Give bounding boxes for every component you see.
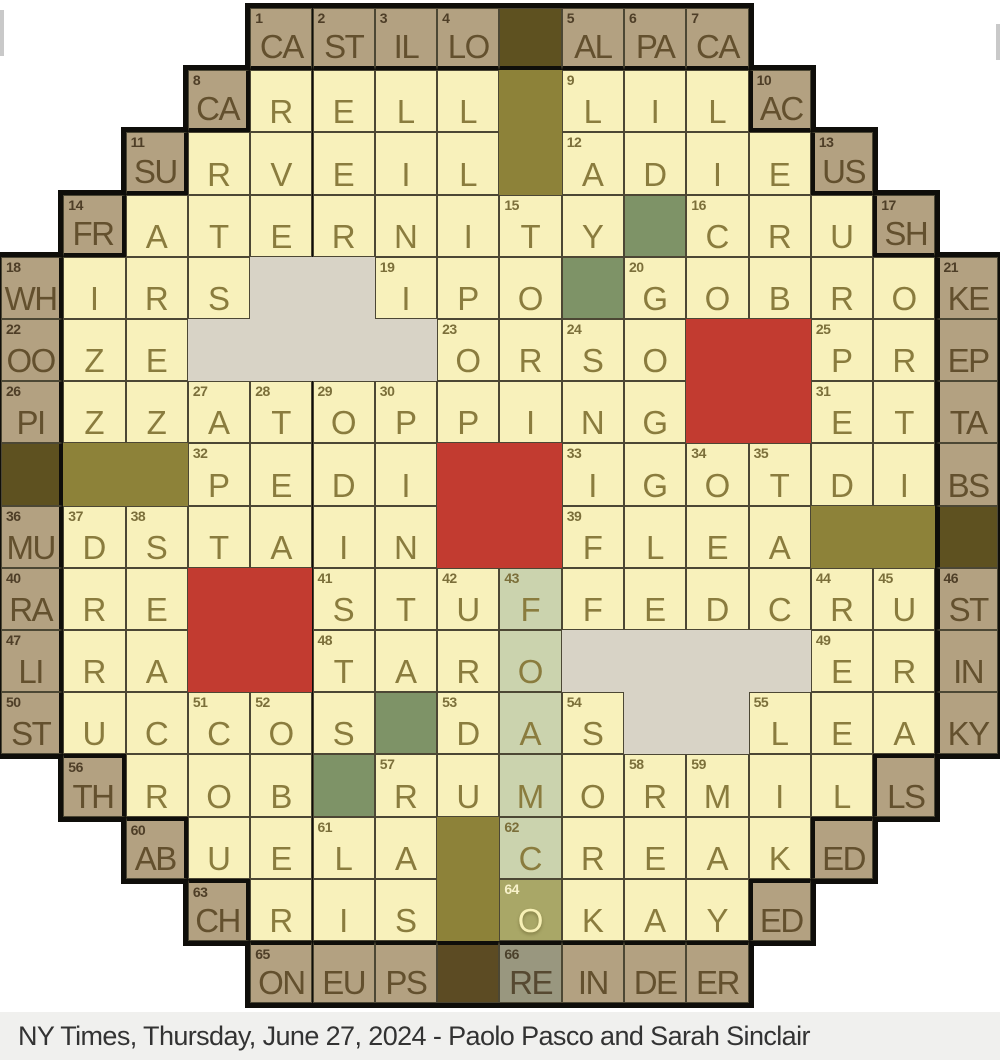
grid-cell[interactable]: O xyxy=(624,319,686,381)
cell-letter: Y xyxy=(563,220,623,253)
cell-letter: I xyxy=(376,158,436,191)
grid-cell[interactable]: E xyxy=(313,132,375,194)
grid-cell[interactable]: L xyxy=(375,70,437,132)
grid-cell[interactable]: N xyxy=(375,506,437,568)
grid-cell[interactable]: I xyxy=(624,70,686,132)
cell-letter: D xyxy=(314,469,374,502)
grid-cell[interactable]: 43F xyxy=(499,568,561,630)
grid-cell[interactable]: O xyxy=(499,630,561,692)
grid-cell[interactable]: G xyxy=(624,381,686,443)
grid-cell[interactable]: 60AB xyxy=(126,817,188,879)
grid-cell[interactable]: P xyxy=(437,381,499,443)
grid-cell[interactable]: 20G xyxy=(624,257,686,319)
grid-cell[interactable]: I xyxy=(873,443,935,505)
grid-cell[interactable]: G xyxy=(624,443,686,505)
cell-letter: MU xyxy=(2,531,59,564)
clue-number: 64 xyxy=(504,881,519,898)
cell-letter: CA xyxy=(189,92,246,125)
cell-letter: C xyxy=(750,593,810,626)
grid-cell[interactable]: T xyxy=(188,506,250,568)
grid-cell[interactable]: ED xyxy=(749,879,811,941)
grid-cell[interactable]: R xyxy=(499,319,561,381)
cell-letter: T xyxy=(500,220,560,253)
cell-letter: G xyxy=(625,406,685,439)
clue-number: 36 xyxy=(6,508,21,525)
cell-letter: R xyxy=(812,282,872,315)
grid-cell[interactable]: A xyxy=(375,817,437,879)
grid-cell[interactable]: S xyxy=(375,879,437,941)
grid-cell[interactable]: B xyxy=(749,257,811,319)
cell-letter: P xyxy=(812,344,872,377)
grid-cell[interactable]: R xyxy=(811,257,873,319)
grid-cell[interactable]: O xyxy=(188,754,250,816)
cell-letter: ER xyxy=(687,966,747,999)
grid-cell[interactable]: D xyxy=(624,132,686,194)
grid-cell[interactable]: 2ST xyxy=(313,8,375,70)
cell-letter: O xyxy=(314,406,374,439)
grid-cell[interactable]: C xyxy=(749,568,811,630)
grid-cell[interactable]: 40RA xyxy=(1,568,63,630)
cell-letter: N xyxy=(563,406,623,439)
grid-cell[interactable]: 15T xyxy=(499,195,561,257)
cell-letter: RA xyxy=(2,593,59,626)
grid-cell[interactable]: I xyxy=(63,257,125,319)
cell-letter: AL xyxy=(563,30,623,63)
topping-mushroom xyxy=(562,630,811,692)
grid-cell[interactable]: O xyxy=(686,257,748,319)
cell-letter: K xyxy=(563,904,623,937)
grid-cell[interactable]: R xyxy=(873,319,935,381)
grid-cell[interactable]: 56TH xyxy=(63,754,125,816)
grid-cell[interactable]: Y xyxy=(686,879,748,941)
grid-cell[interactable]: 42U xyxy=(437,568,499,630)
cell-letter: KY xyxy=(940,717,997,750)
grid-cell[interactable]: D xyxy=(811,443,873,505)
cell-letter: P xyxy=(438,282,498,315)
grid-cell[interactable]: 25P xyxy=(811,319,873,381)
grid-cell[interactable]: D xyxy=(313,443,375,505)
grid-cell[interactable]: E xyxy=(811,692,873,754)
grid-cell[interactable]: 47LI xyxy=(1,630,63,692)
cell-letter: I xyxy=(438,220,498,253)
cell-letter: R xyxy=(251,95,311,128)
grid-cell[interactable]: V xyxy=(250,132,312,194)
cell-letter: I xyxy=(874,469,934,502)
clue-number: 41 xyxy=(318,570,333,587)
cell-letter: O xyxy=(189,780,249,813)
cell-letter: I xyxy=(376,469,436,502)
grid-cell[interactable]: 49E xyxy=(811,630,873,692)
grid-cell[interactable]: E xyxy=(250,817,312,879)
cell-letter: I xyxy=(376,282,436,315)
grid-cell[interactable]: O xyxy=(873,257,935,319)
grid-cell[interactable]: 31E xyxy=(811,381,873,443)
grid-cell[interactable]: 19I xyxy=(375,257,437,319)
grid-cell[interactable]: 1CA xyxy=(250,8,312,70)
grid-cell[interactable]: O xyxy=(562,754,624,816)
grid-cell[interactable]: E xyxy=(250,195,312,257)
grid-cell[interactable]: B xyxy=(250,754,312,816)
cell-letter: S xyxy=(563,717,623,750)
grid-cell[interactable]: 7CA xyxy=(686,8,748,70)
clue-number: 50 xyxy=(6,694,21,711)
grid-cell[interactable]: 44R xyxy=(811,568,873,630)
grid-cell[interactable]: E xyxy=(686,506,748,568)
cell-letter: D xyxy=(812,469,872,502)
cell-letter: I xyxy=(687,158,747,191)
grid-cell[interactable]: A xyxy=(624,879,686,941)
clue-number: 26 xyxy=(6,383,21,400)
grid-cell[interactable]: L xyxy=(624,506,686,568)
grid-cell[interactable]: K xyxy=(749,817,811,879)
cell-letter: ST xyxy=(2,717,59,750)
grid-cell[interactable]: 54S xyxy=(562,692,624,754)
cell-letter: E xyxy=(127,344,187,377)
grid-cell[interactable]: A xyxy=(126,630,188,692)
grid-cell[interactable]: R xyxy=(63,630,125,692)
cell-letter: CA xyxy=(251,30,311,63)
clue-number: 29 xyxy=(318,383,333,400)
grid-cell[interactable]: R xyxy=(63,568,125,630)
cell-letter: R xyxy=(874,344,934,377)
grid-cell[interactable]: I xyxy=(686,132,748,194)
cell-letter: E xyxy=(687,531,747,564)
cell-letter: IN xyxy=(940,655,997,688)
grid-cell[interactable]: 30P xyxy=(375,381,437,443)
black-square xyxy=(936,506,998,568)
grid-cell[interactable]: L xyxy=(437,132,499,194)
cell-letter: E xyxy=(812,406,872,439)
grid-cell[interactable]: 64O xyxy=(499,879,561,941)
cell-letter: R xyxy=(812,593,872,626)
grid-cell[interactable]: 6PA xyxy=(624,8,686,70)
grid-cell[interactable]: E xyxy=(126,568,188,630)
grid-cell[interactable]: ED xyxy=(811,817,873,879)
grid-cell[interactable]: 39F xyxy=(562,506,624,568)
grid-cell[interactable]: 23O xyxy=(437,319,499,381)
cell-letter: A xyxy=(500,717,560,750)
cell-letter: C xyxy=(127,717,187,750)
cell-letter: E xyxy=(127,593,187,626)
grid-cell[interactable]: TA xyxy=(936,381,998,443)
grid-cell[interactable]: I xyxy=(437,195,499,257)
cell-letter: CH xyxy=(189,904,246,937)
grid-cell[interactable]: 11SU xyxy=(126,132,188,194)
cell-letter: A xyxy=(563,158,623,191)
grid-cell[interactable]: 50ST xyxy=(1,692,63,754)
grid-cell[interactable]: I xyxy=(375,443,437,505)
clue-number: 42 xyxy=(442,570,457,587)
cell-letter: OO xyxy=(2,344,59,377)
cell-letter: M xyxy=(687,780,747,813)
grid-cell[interactable]: U xyxy=(437,754,499,816)
grid-cell[interactable]: 52O xyxy=(250,692,312,754)
grid-cell[interactable]: Z xyxy=(63,319,125,381)
grid-cell[interactable]: E xyxy=(313,70,375,132)
cell-letter: T xyxy=(314,655,374,688)
grid-cell[interactable]: R xyxy=(313,195,375,257)
grid-cell xyxy=(313,754,375,816)
grid-cell[interactable]: A xyxy=(126,195,188,257)
topping-mushroom xyxy=(250,257,375,319)
grid-cell[interactable]: I xyxy=(499,381,561,443)
grid-cell[interactable]: R xyxy=(749,195,811,257)
grid-cell[interactable]: PS xyxy=(375,941,437,1003)
clue-number: 6 xyxy=(629,10,636,27)
grid-cell[interactable]: 12A xyxy=(562,132,624,194)
clue-number: 38 xyxy=(131,508,146,525)
grid-cell[interactable]: 33I xyxy=(562,443,624,505)
cell-letter: T xyxy=(251,406,311,439)
grid-cell[interactable]: A xyxy=(499,692,561,754)
clue-number: 12 xyxy=(567,134,582,151)
grid-cell[interactable]: A xyxy=(375,630,437,692)
grid-cell[interactable]: 57R xyxy=(375,754,437,816)
grid-cell[interactable]: 16C xyxy=(686,195,748,257)
grid-cell[interactable]: LS xyxy=(873,754,935,816)
grid-cell[interactable]: 29O xyxy=(313,381,375,443)
grid-cell[interactable]: 45U xyxy=(873,568,935,630)
grid-cell[interactable]: N xyxy=(562,381,624,443)
grid-cell[interactable]: 14FR xyxy=(63,195,125,257)
grid-cell xyxy=(562,257,624,319)
clue-number: 48 xyxy=(318,632,333,649)
clue-number: 56 xyxy=(68,759,83,776)
grid-cell[interactable]: L xyxy=(811,754,873,816)
grid-cell[interactable]: I xyxy=(749,754,811,816)
cell-letter: I xyxy=(314,904,374,937)
grid-cell[interactable]: 21KE xyxy=(936,257,998,319)
grid-cell[interactable]: IN xyxy=(562,941,624,1003)
grid-cell[interactable]: 28T xyxy=(250,381,312,443)
cell-letter: D xyxy=(625,158,685,191)
clue-number: 33 xyxy=(567,445,582,462)
grid-cell[interactable]: ER xyxy=(686,941,748,1003)
grid-cell[interactable]: 37D xyxy=(63,506,125,568)
grid-cell[interactable]: 13US xyxy=(811,132,873,194)
cell-letter: G xyxy=(625,282,685,315)
cell-letter: R xyxy=(127,780,187,813)
cell-letter: E xyxy=(750,158,810,191)
grid-cell[interactable]: K xyxy=(562,879,624,941)
grid-cell[interactable]: 18WH xyxy=(1,257,63,319)
cell-letter: Z xyxy=(64,344,124,377)
clue-number: 47 xyxy=(6,632,21,649)
grid-cell[interactable]: R xyxy=(873,630,935,692)
clue-number: 55 xyxy=(754,694,769,711)
grid-cell[interactable]: Z xyxy=(63,381,125,443)
grid-cell[interactable]: 62C xyxy=(499,817,561,879)
cell-letter: KE xyxy=(940,282,997,315)
grid-cell[interactable]: 5AL xyxy=(562,8,624,70)
grid-cell[interactable]: L xyxy=(437,70,499,132)
cell-letter: T xyxy=(750,469,810,502)
cell-letter: L xyxy=(563,95,623,128)
grid-cell[interactable]: E xyxy=(624,817,686,879)
grid-cell xyxy=(375,692,437,754)
cell-letter: U xyxy=(64,717,124,750)
grid-cell[interactable]: 61L xyxy=(313,817,375,879)
clue-number: 46 xyxy=(944,570,959,587)
grid-cell[interactable]: 24S xyxy=(562,319,624,381)
clue-number: 34 xyxy=(691,445,706,462)
grid-cell[interactable]: 36MU xyxy=(1,506,63,568)
grid-cell[interactable]: R xyxy=(188,132,250,194)
grid-cell[interactable]: E xyxy=(126,319,188,381)
cell-letter: A xyxy=(127,655,187,688)
grid-cell[interactable]: 4LO xyxy=(437,8,499,70)
clue-number: 24 xyxy=(567,321,582,338)
grid-cell[interactable]: R xyxy=(250,70,312,132)
cell-letter: PA xyxy=(625,30,685,63)
grid-cell[interactable]: 63CH xyxy=(188,879,250,941)
cell-letter: L xyxy=(438,158,498,191)
grid-cell[interactable]: IN xyxy=(936,630,998,692)
cell-letter: A xyxy=(127,220,187,253)
grid-cell[interactable]: E xyxy=(749,132,811,194)
grid-cell[interactable]: EP xyxy=(936,319,998,381)
clue-number: 22 xyxy=(6,321,21,338)
cell-letter: S xyxy=(127,531,187,564)
grid-cell[interactable]: 22OO xyxy=(1,319,63,381)
grid-cell[interactable]: KY xyxy=(936,692,998,754)
cell-letter: O xyxy=(625,344,685,377)
clue-number: 30 xyxy=(380,383,395,400)
cell-letter: TA xyxy=(940,406,997,439)
grid-cell[interactable]: A xyxy=(250,506,312,568)
grid-cell[interactable]: 58R xyxy=(624,754,686,816)
grid-cell[interactable]: C xyxy=(126,692,188,754)
grid-cell[interactable]: 26PI xyxy=(1,381,63,443)
grid-cell[interactable]: 8CA xyxy=(188,70,250,132)
cell-letter: T xyxy=(189,531,249,564)
grid-cell[interactable]: Y xyxy=(562,195,624,257)
cell-letter: S xyxy=(314,593,374,626)
grid-cell[interactable]: 35T xyxy=(749,443,811,505)
grid-cell[interactable]: P xyxy=(437,257,499,319)
grid-cell[interactable]: 41S xyxy=(313,568,375,630)
grid-cell[interactable]: M xyxy=(499,754,561,816)
cell-letter: E xyxy=(251,842,311,875)
cell-letter: IL xyxy=(376,30,436,63)
clue-number: 3 xyxy=(380,10,387,27)
grid-cell[interactable]: EU xyxy=(313,941,375,1003)
cell-letter: L xyxy=(687,95,747,128)
grid-cell[interactable]: 66RE xyxy=(499,941,561,1003)
grid-cell[interactable]: S xyxy=(313,692,375,754)
grid-cell[interactable]: 46ST xyxy=(936,568,998,630)
grid-cell[interactable]: R xyxy=(562,817,624,879)
grid-cell[interactable]: N xyxy=(375,195,437,257)
grid-cell[interactable]: T xyxy=(188,195,250,257)
grid-cell[interactable]: I xyxy=(313,879,375,941)
clue-number: 20 xyxy=(629,259,644,276)
grid-cell[interactable]: 53D xyxy=(437,692,499,754)
grid-cell[interactable]: D xyxy=(686,568,748,630)
clue-number: 39 xyxy=(567,508,582,525)
clue-number: 63 xyxy=(193,884,208,901)
grid-cell[interactable]: A xyxy=(749,506,811,568)
grid-cell[interactable]: I xyxy=(375,132,437,194)
grid-cell[interactable]: 51C xyxy=(188,692,250,754)
grid-cell[interactable]: L xyxy=(686,70,748,132)
clue-number: 35 xyxy=(754,445,769,462)
grid-cell[interactable]: 9L xyxy=(562,70,624,132)
clue-number: 28 xyxy=(255,383,270,400)
clue-number: 25 xyxy=(816,321,831,338)
clue-number: 59 xyxy=(691,756,706,773)
grid-cell[interactable]: E xyxy=(250,443,312,505)
cell-letter: ST xyxy=(314,30,374,63)
grid-cell[interactable]: 32P xyxy=(188,443,250,505)
grid-cell[interactable]: Z xyxy=(126,381,188,443)
topping-pepperoni xyxy=(188,568,313,692)
grid-cell[interactable]: I xyxy=(313,506,375,568)
clue-number: 60 xyxy=(131,822,146,839)
grid-cell[interactable]: O xyxy=(499,257,561,319)
grid-cell[interactable]: U xyxy=(811,195,873,257)
grid-cell[interactable]: A xyxy=(873,692,935,754)
clue-number: 9 xyxy=(567,72,574,89)
clue-number: 14 xyxy=(68,197,83,214)
grid-cell[interactable]: 48T xyxy=(313,630,375,692)
grid-cell[interactable]: R xyxy=(126,257,188,319)
grid-cell[interactable]: 55L xyxy=(749,692,811,754)
cell-letter: D xyxy=(687,593,747,626)
cell-letter: O xyxy=(874,282,934,315)
grid-cell[interactable]: 27A xyxy=(188,381,250,443)
grid-cell[interactable]: F xyxy=(562,568,624,630)
clue-number: 10 xyxy=(757,72,772,89)
cell-letter: PS xyxy=(376,966,436,999)
cell-letter: WH xyxy=(2,282,59,315)
grid-cell[interactable]: 38S xyxy=(126,506,188,568)
cell-letter: L xyxy=(812,780,872,813)
grid-cell[interactable]: 17SH xyxy=(873,195,935,257)
clue-number: 2 xyxy=(318,10,325,27)
grid-cell[interactable]: BS xyxy=(936,443,998,505)
grid-cell[interactable]: T xyxy=(873,381,935,443)
grid-cell[interactable]: E xyxy=(624,568,686,630)
topping-olive xyxy=(437,817,499,941)
grid-cell[interactable]: 65ON xyxy=(250,941,312,1003)
grid-cell[interactable]: 34O xyxy=(686,443,748,505)
cell-letter: A xyxy=(750,531,810,564)
cell-letter: P xyxy=(438,406,498,439)
grid-cell[interactable]: U xyxy=(63,692,125,754)
clue-number: 16 xyxy=(691,197,706,214)
grid-cell[interactable]: R xyxy=(126,754,188,816)
cell-letter: D xyxy=(64,531,124,564)
grid-cell[interactable]: R xyxy=(250,879,312,941)
clue-number: 58 xyxy=(629,756,644,773)
clue-number: 27 xyxy=(193,383,208,400)
cell-letter: O xyxy=(687,282,747,315)
grid-cell[interactable]: T xyxy=(375,568,437,630)
topping-pepperoni xyxy=(437,443,562,567)
grid-cell[interactable]: R xyxy=(437,630,499,692)
clue-number: 66 xyxy=(504,946,519,963)
grid-cell[interactable]: S xyxy=(188,257,250,319)
grid-cell[interactable]: U xyxy=(188,817,250,879)
grid-cell[interactable]: 3IL xyxy=(375,8,437,70)
grid-cell[interactable]: A xyxy=(686,817,748,879)
grid-cell[interactable]: DE xyxy=(624,941,686,1003)
topping-olive xyxy=(63,443,188,505)
grid-cell[interactable]: 59M xyxy=(686,754,748,816)
clue-number: 32 xyxy=(193,445,208,462)
grid-cell[interactable]: 10AC xyxy=(749,70,811,132)
